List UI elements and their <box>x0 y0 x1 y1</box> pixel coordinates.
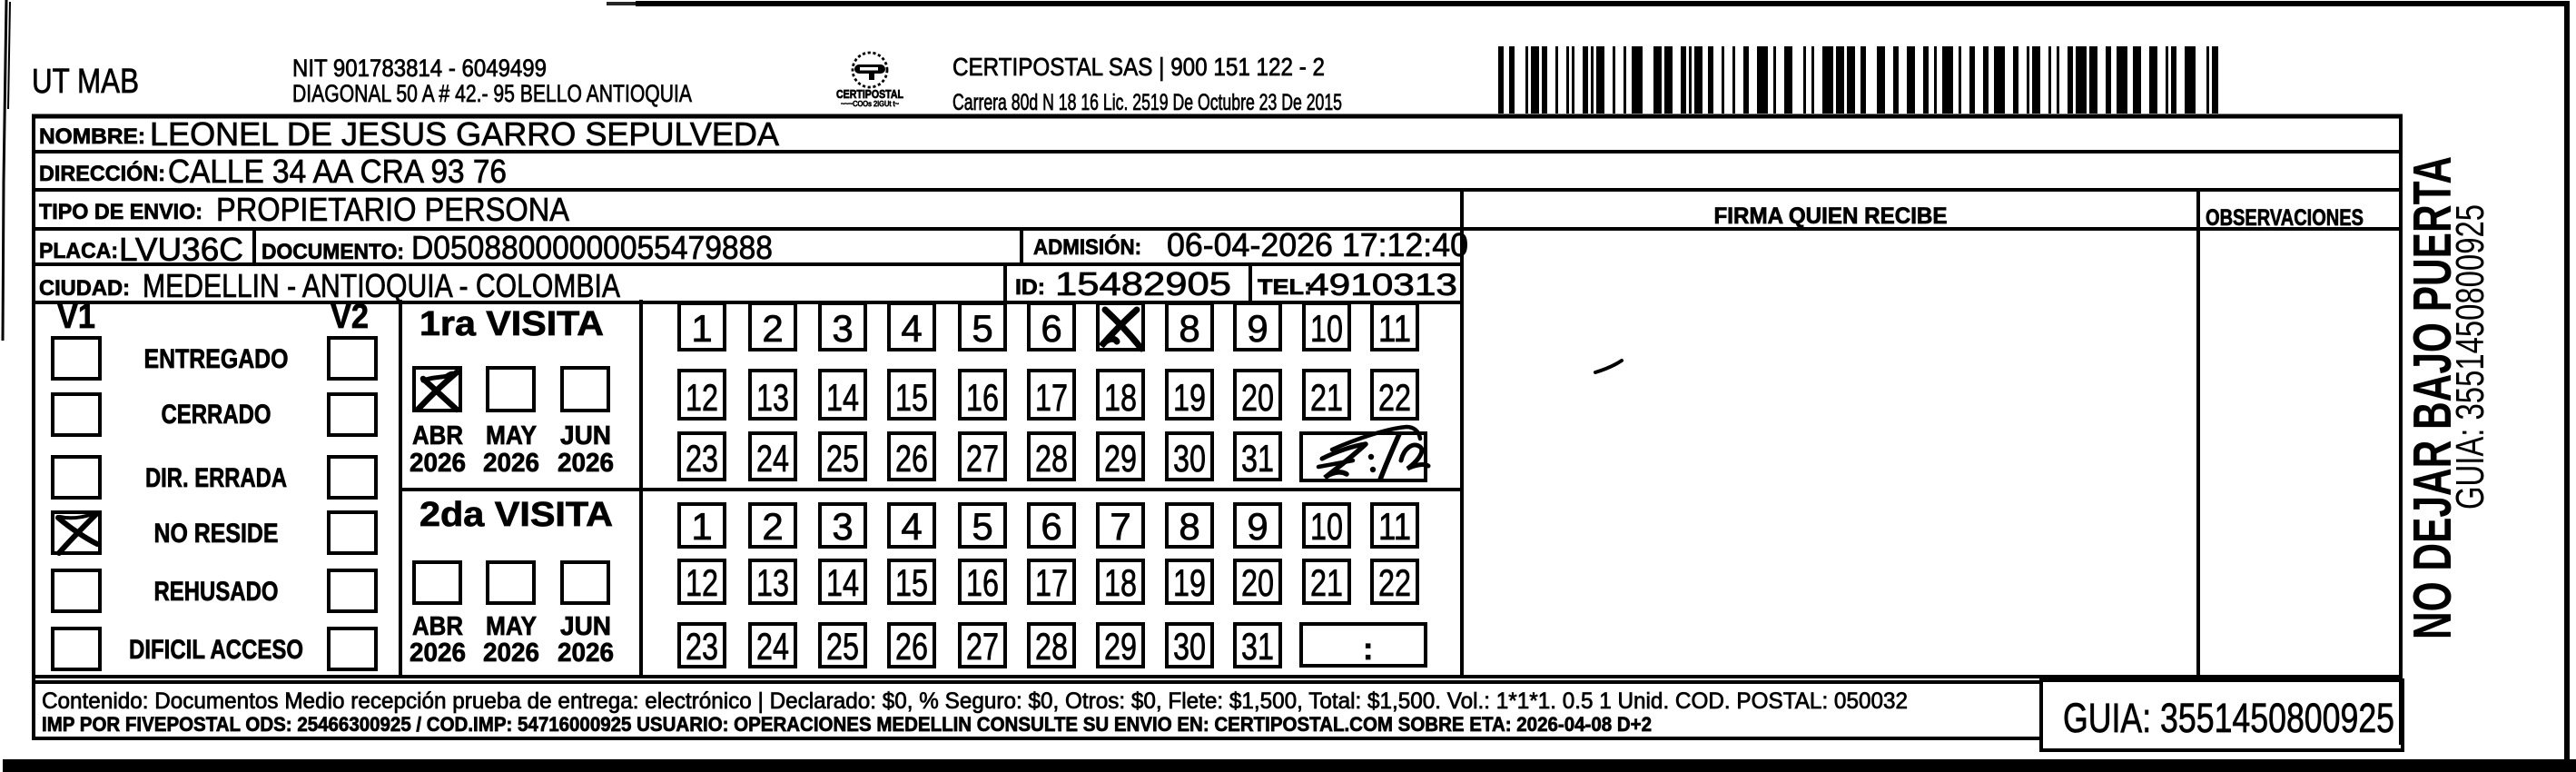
svg-text:1: 1 <box>691 505 712 548</box>
svg-text:26: 26 <box>895 625 928 668</box>
svg-text:25: 25 <box>826 625 859 668</box>
svg-text:NOMBRE:: NOMBRE: <box>39 124 145 149</box>
svg-text:MEDELLIN - ANTIOQUIA - COLOMBI: MEDELLIN - ANTIOQUIA - COLOMBIA <box>143 267 620 304</box>
svg-text:17: 17 <box>1035 376 1068 419</box>
svg-text:CERTIPOSTAL: CERTIPOSTAL <box>836 87 903 101</box>
svg-text:4: 4 <box>901 505 922 548</box>
svg-text:2026: 2026 <box>558 638 614 668</box>
svg-text:5: 5 <box>972 505 992 548</box>
svg-text:22: 22 <box>1378 561 1411 604</box>
svg-text:DIRECCIÓN:: DIRECCIÓN: <box>39 161 165 186</box>
svg-text:29: 29 <box>1104 625 1137 668</box>
svg-text:DIAGONAL 50 A # 42.- 95 BELLO: DIAGONAL 50 A # 42.- 95 BELLO ANTIOQUIA <box>292 80 692 107</box>
svg-text:ABR: ABR <box>412 612 463 641</box>
svg-text:CERRADO: CERRADO <box>162 400 271 430</box>
svg-text:4: 4 <box>901 307 922 350</box>
svg-text:2026: 2026 <box>410 449 466 478</box>
svg-text:3: 3 <box>832 307 853 350</box>
svg-text:27: 27 <box>966 437 999 480</box>
svg-text:UT MAB: UT MAB <box>32 63 139 101</box>
svg-text:23: 23 <box>686 625 718 668</box>
svg-text:~~~COOs 2IGUt t~: ~~~COOs 2IGUt t~ <box>841 100 899 108</box>
svg-text:17: 17 <box>1035 561 1068 604</box>
svg-text:21: 21 <box>1310 561 1343 604</box>
svg-text:8: 8 <box>1179 505 1199 548</box>
svg-text:29: 29 <box>1104 437 1137 480</box>
svg-text:V1: V1 <box>57 298 95 336</box>
svg-text:LEONEL DE JESUS GARRO SEPULVED: LEONEL DE JESUS GARRO SEPULVEDA <box>150 115 779 153</box>
svg-text:GUIA: 3551450800925: GUIA: 3551450800925 <box>2448 204 2492 510</box>
svg-text:V2: V2 <box>331 298 369 336</box>
svg-text:15: 15 <box>895 561 928 604</box>
svg-text:MAY: MAY <box>486 421 537 450</box>
svg-text:14: 14 <box>826 376 859 419</box>
svg-text:31: 31 <box>1241 437 1274 480</box>
svg-text:DIFICIL ACCESO: DIFICIL ACCESO <box>129 635 303 665</box>
svg-text:4910313: 4910313 <box>1308 268 1457 302</box>
svg-text:11: 11 <box>1378 505 1411 548</box>
svg-text:CIUDAD:: CIUDAD: <box>39 276 130 301</box>
svg-text:NO RESIDE: NO RESIDE <box>154 519 279 549</box>
svg-text:MAY: MAY <box>486 612 537 641</box>
svg-text:16: 16 <box>966 561 999 604</box>
svg-text:24: 24 <box>756 437 789 480</box>
svg-text:11: 11 <box>1378 307 1411 350</box>
svg-text:8: 8 <box>1179 307 1199 350</box>
svg-text:CALLE 34 AA CRA 93 76: CALLE 34 AA CRA 93 76 <box>168 153 507 190</box>
svg-text:2: 2 <box>762 307 783 350</box>
svg-text:2026: 2026 <box>558 449 614 478</box>
svg-text:DOCUMENTO:: DOCUMENTO: <box>262 240 404 264</box>
svg-text:JUN: JUN <box>560 421 611 450</box>
svg-text:31: 31 <box>1241 625 1274 668</box>
svg-text:13: 13 <box>756 376 789 419</box>
svg-text:PLACA:: PLACA: <box>39 239 118 263</box>
svg-text:12: 12 <box>686 376 718 419</box>
svg-text:D05088000000055479888: D05088000000055479888 <box>411 229 773 266</box>
svg-text:TEL:: TEL: <box>1258 275 1312 300</box>
svg-text:27: 27 <box>966 625 999 668</box>
svg-text:10: 10 <box>1310 505 1343 548</box>
svg-text:NIT 901783814 - 6049499: NIT 901783814 - 6049499 <box>292 54 547 82</box>
svg-text:6: 6 <box>1041 307 1061 350</box>
svg-text:9: 9 <box>1247 307 1268 350</box>
svg-text:18: 18 <box>1104 561 1137 604</box>
svg-text:15482905: 15482905 <box>1055 265 1231 302</box>
svg-text:2: 2 <box>762 505 783 548</box>
svg-text:2026: 2026 <box>483 638 539 668</box>
svg-text:9: 9 <box>1247 505 1268 548</box>
svg-text:1ra VISITA: 1ra VISITA <box>419 305 604 343</box>
svg-text:5: 5 <box>972 307 992 350</box>
svg-text:ID:: ID: <box>1015 275 1045 300</box>
svg-text:PROPIETARIO PERSONA: PROPIETARIO PERSONA <box>216 191 569 228</box>
svg-text:28: 28 <box>1035 625 1068 668</box>
svg-text:OBSERVACIONES: OBSERVACIONES <box>2206 205 2364 231</box>
svg-text:LVU36C: LVU36C <box>119 231 243 268</box>
svg-text:Carrera 80d N 18 16 Lic. 2519: Carrera 80d N 18 16 Lic. 2519 De Octubre… <box>952 90 1342 115</box>
svg-text:1: 1 <box>691 307 712 350</box>
svg-text:22: 22 <box>1378 376 1411 419</box>
svg-text:06-04-2026 17:12:40: 06-04-2026 17:12:40 <box>1167 226 1468 263</box>
svg-text:DIR. ERRADA: DIR. ERRADA <box>145 463 287 493</box>
svg-text:CERTIPOSTAL SAS | 900 151 122: CERTIPOSTAL SAS | 900 151 122 - 2 <box>952 53 1325 81</box>
svg-text:2026: 2026 <box>483 449 539 478</box>
svg-text:2da VISITA: 2da VISITA <box>419 496 613 534</box>
svg-text:16: 16 <box>966 376 999 419</box>
svg-text:20: 20 <box>1241 376 1274 419</box>
svg-text:24: 24 <box>756 625 789 668</box>
svg-text:JUN: JUN <box>560 612 611 641</box>
svg-text:19: 19 <box>1173 376 1206 419</box>
svg-text:IMP POR FIVEPOSTAL ODS: 254663: IMP POR FIVEPOSTAL ODS: 25466300925 / CO… <box>42 713 1652 736</box>
svg-text:REHUSADO: REHUSADO <box>154 577 279 607</box>
svg-text:25: 25 <box>826 437 859 480</box>
svg-text:TIPO DE ENVIO:: TIPO DE ENVIO: <box>39 200 202 224</box>
svg-text:18: 18 <box>1104 376 1137 419</box>
svg-text:15: 15 <box>895 376 928 419</box>
svg-text:19: 19 <box>1173 561 1206 604</box>
svg-text:Contenido: Documentos Medio re: Contenido: Documentos Medio recepción pr… <box>42 688 1908 714</box>
svg-text:23: 23 <box>686 437 718 480</box>
svg-text:30: 30 <box>1173 437 1206 480</box>
svg-text:6: 6 <box>1041 505 1061 548</box>
svg-text:28: 28 <box>1035 437 1068 480</box>
svg-text:2026: 2026 <box>410 638 466 668</box>
svg-text:21: 21 <box>1310 376 1343 419</box>
svg-text:10: 10 <box>1310 307 1343 350</box>
svg-text:ABR: ABR <box>412 421 463 450</box>
svg-text:ENTREGADO: ENTREGADO <box>144 344 289 374</box>
svg-text:14: 14 <box>826 561 859 604</box>
svg-text:12: 12 <box>686 561 718 604</box>
svg-text:7: 7 <box>1110 505 1130 548</box>
svg-text:20: 20 <box>1241 561 1274 604</box>
svg-text:3: 3 <box>832 505 853 548</box>
svg-text:30: 30 <box>1173 625 1206 668</box>
svg-text:26: 26 <box>895 437 928 480</box>
svg-text:GUIA: 3551450800925: GUIA: 3551450800925 <box>2063 695 2394 741</box>
svg-text:13: 13 <box>756 561 789 604</box>
svg-text:ADMISIÓN:: ADMISIÓN: <box>1033 234 1141 260</box>
svg-text::: : <box>1363 632 1373 667</box>
svg-text:FIRMA QUIEN RECIBE: FIRMA QUIEN RECIBE <box>1714 203 1948 229</box>
